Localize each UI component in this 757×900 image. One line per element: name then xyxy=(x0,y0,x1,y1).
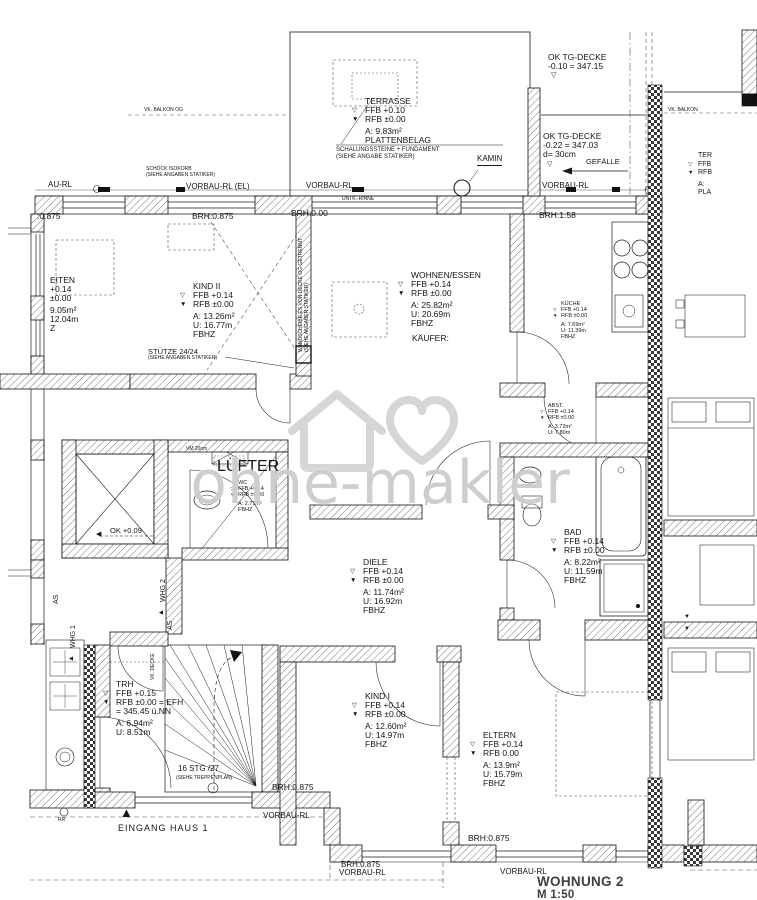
ffb-marker-icon: ▽ xyxy=(398,280,411,289)
ffb-marker-icon: ▽ xyxy=(350,567,363,576)
rfb-marker-icon: ▼ xyxy=(352,710,365,719)
room-label-bad: BAD ▽FFB +0.14 ▼RFB ±0.00 A: 8.22m² U: 1… xyxy=(551,528,605,585)
label-brh-0875-bottom-mid: BRH:0.875 xyxy=(468,834,510,843)
label-tg-decke-2: OK TG-DECKE -0.22 = 347.03 d= 30cm xyxy=(543,132,601,160)
ffb-marker-icon: ▽ xyxy=(352,106,365,115)
label-brh-0875-stair: BRH:0.875 xyxy=(272,783,314,792)
label-eingang: EINGANG HAUS 1 xyxy=(118,824,209,834)
label-kamin: KAMIN xyxy=(477,155,502,166)
ffb-marker-icon: ▽ xyxy=(103,689,116,698)
room-label-arbeiten-cut: EITEN +0.14 ±0.00 9.05m² 12.04m Z xyxy=(50,276,78,333)
plan-title: WOHNUNG 2 xyxy=(537,874,624,889)
label-schalung: SCHALUNGSSTEINE + FUNDAMENT (SIEHE ANGAB… xyxy=(336,147,440,160)
label-brh-0875-left: :0.875 xyxy=(37,212,61,221)
label-untk-rinne: UNTK.-RINNE xyxy=(342,197,374,203)
ffb-marker-icon: ▽ xyxy=(352,701,365,710)
ffb-marker-icon: ▽ xyxy=(688,161,698,170)
room-label-wohnen: WOHNEN/ESSEN ▽FFB +0.14 ▼RFB ±0.00 A: 25… xyxy=(398,271,481,328)
label-vorbau-rl-el: VORBAU-RL (EL) xyxy=(186,183,250,192)
ffb-marker-icon: ▽ xyxy=(180,291,193,300)
room-label-kind2: KIND II ▽FFB +0.14 ▼RFB ±0.00 A: 13.26m²… xyxy=(180,282,235,339)
label-vk-balkon-right: VK. BALKON xyxy=(668,108,698,114)
room-label-kueche: KÜCHE ▽FFB +0.14 ▼RFB ±0.00 A: 7.69m² U:… xyxy=(553,301,587,340)
label-tg-decke-1: OK TG-DECKE -0.10 = 347.15 xyxy=(548,53,606,71)
label-vk-balkon-left: VK. BALKON OG xyxy=(144,108,183,114)
rfb-marker-icon: ▼ xyxy=(398,289,411,298)
rfb-marker-icon: ▼ xyxy=(352,115,365,124)
label-kaeufer: KÄUFER: xyxy=(412,334,449,343)
label-brh-000: BRH:0.00 xyxy=(291,209,328,218)
rfb-marker-icon: ▼ xyxy=(180,300,193,309)
label-brh-0875-top: BRH:0.875 xyxy=(192,212,234,221)
room-label-diele: DIELE ▽FFB +0.14 ▼RFB ±0.00 A: 11.74m² U… xyxy=(350,558,404,615)
rfb-marker-icon: ▼ xyxy=(470,749,483,758)
label-as-left: AS xyxy=(53,595,62,604)
rfb-marker-icon: ▼ xyxy=(684,626,690,632)
rfb-marker-icon: ▼ xyxy=(350,576,363,585)
label-stg: 16 STG /27 xyxy=(178,765,219,774)
ffb-marker-icon: ▽ xyxy=(551,537,564,546)
neighbor-kitchen-left xyxy=(46,640,84,790)
rfb-marker-icon: ▼ xyxy=(688,169,698,178)
label-vorbau-rl-bottom-left: VORBAU-RL xyxy=(339,869,386,878)
whg-marker-icon: ▲ xyxy=(68,655,77,662)
kamin-circle xyxy=(454,180,470,196)
room-label-terrasse-right-cut: TER ▽FFB ▼RFB A: PLA xyxy=(688,152,712,198)
watermark-text: ohne-makler xyxy=(178,448,582,518)
label-vorbau-rl-left: AU-RL xyxy=(48,181,72,190)
ffb-marker-icon: ▽ xyxy=(470,740,483,749)
rfb-marker-icon: ▼ xyxy=(684,614,690,620)
room-label-kind1: KIND I ▽FFB +0.14 ▼RFB ±0.00 A: 12.60m² … xyxy=(352,692,407,749)
entrance-triangle-icon: ▲ xyxy=(120,806,133,820)
label-rr: RR xyxy=(58,818,65,824)
label-as-right: AS xyxy=(167,621,176,630)
room-label-trh: TRH ▽FFB +0.15 ▼RFB ±0.00 = EFH = 345.45… xyxy=(103,680,183,737)
floorplan-page: AU-RL VORBAU-RL (EL) VORBAU-RL UNTK.-RIN… xyxy=(0,0,757,900)
whg-marker-icon: ▲ xyxy=(158,609,167,616)
label-wandscheibe: WANDSCHEIBE ES VON DECKE OG GETRENNT (SI… xyxy=(299,238,310,352)
plan-scale: M 1:50 xyxy=(537,889,575,900)
label-vorbau-rl-mid: VORBAU-RL xyxy=(306,182,353,191)
rfb-marker-icon: ▼ xyxy=(553,313,561,319)
label-ok009: OK +0.09 xyxy=(110,527,142,535)
label-schoeck: SCHÖCK ISOKORB (SIEHE ANGABEN STATIKER) xyxy=(146,167,215,178)
label-brh-158: BRH:1.58 xyxy=(539,211,576,220)
label-vk-decke: VK. DECKE xyxy=(151,653,157,680)
rfb-marker-icon: ▼ xyxy=(540,415,548,421)
label-stuetze: STÜTZE 24/24 (SIEHE ANGABEN STATIKER) xyxy=(148,348,217,362)
arrow-left-icon: ◀ xyxy=(96,531,101,540)
rfb-marker-icon: ▼ xyxy=(551,546,564,555)
rfb-marker-icon: ▼ xyxy=(103,698,116,707)
kitchen-counter xyxy=(612,222,648,332)
label-vorbau-rl-stair: VORBAU-RL xyxy=(263,812,310,821)
ffb-marker-icon: ▽ xyxy=(551,72,556,81)
label-whg2: WHG 2 xyxy=(160,579,169,602)
label-whg1: WHG 1 xyxy=(70,625,79,648)
label-stg-sub: (SIEHE TREPPENPLAN) xyxy=(176,776,232,782)
room-label-abst: ABST. ▽FFB +0.14 ▼RFB ±0.00 A: 3.72m² U:… xyxy=(540,403,574,436)
room-label-eltern: ELTERN ▽FFB +0.14 ▼RFB 0.00 A: 13.9m² U:… xyxy=(470,731,523,788)
shower xyxy=(600,560,648,616)
room-label-terrasse: TERRASSE ▽FFB +0.10 ▼RFB ±0.00 A: 9.83m²… xyxy=(352,97,431,145)
label-vorbau-rl-right: VORBAU-RL xyxy=(542,182,589,191)
ffb-marker-icon: ▽ xyxy=(547,161,552,170)
label-gefaelle: GEFÄLLE xyxy=(586,158,620,166)
